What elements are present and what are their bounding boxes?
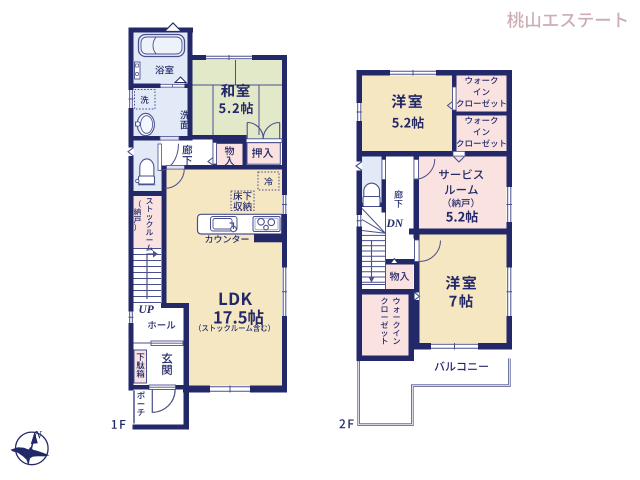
svg-text:UP: UP (139, 304, 155, 316)
svg-text:N: N (33, 430, 43, 442)
svg-text:DN: DN (386, 218, 404, 230)
